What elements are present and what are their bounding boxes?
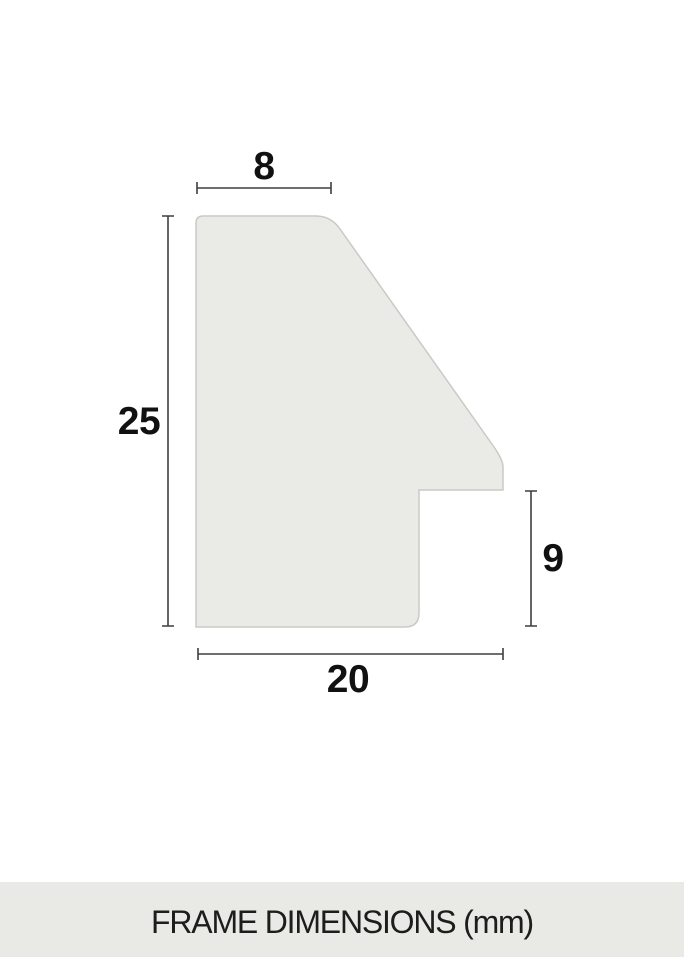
footer-bar: FRAME DIMENSIONS (mm) xyxy=(0,882,684,957)
dimension-label-rabbet-height: 9 xyxy=(542,537,563,580)
footer-title: FRAME DIMENSIONS (mm) xyxy=(151,904,533,941)
frame-profile-shape xyxy=(196,216,503,627)
dimension-bottom-width: 20 xyxy=(198,648,503,701)
dimension-label-top-width: 8 xyxy=(253,145,274,188)
dimension-rabbet-height: 9 xyxy=(525,491,564,626)
dimension-label-total-height: 25 xyxy=(118,400,160,443)
dimension-top-width: 8 xyxy=(197,145,331,194)
page-root: 8 25 9 20 FRAME DIMENSIONS (mm) xyxy=(0,0,684,957)
dimension-total-height: 25 xyxy=(118,216,174,626)
frame-profile-drawing: 8 25 9 20 xyxy=(0,0,684,882)
dimension-line-total-height xyxy=(162,216,174,626)
dimension-label-bottom-width: 20 xyxy=(327,658,369,701)
dimension-line-rabbet-height xyxy=(525,491,537,626)
